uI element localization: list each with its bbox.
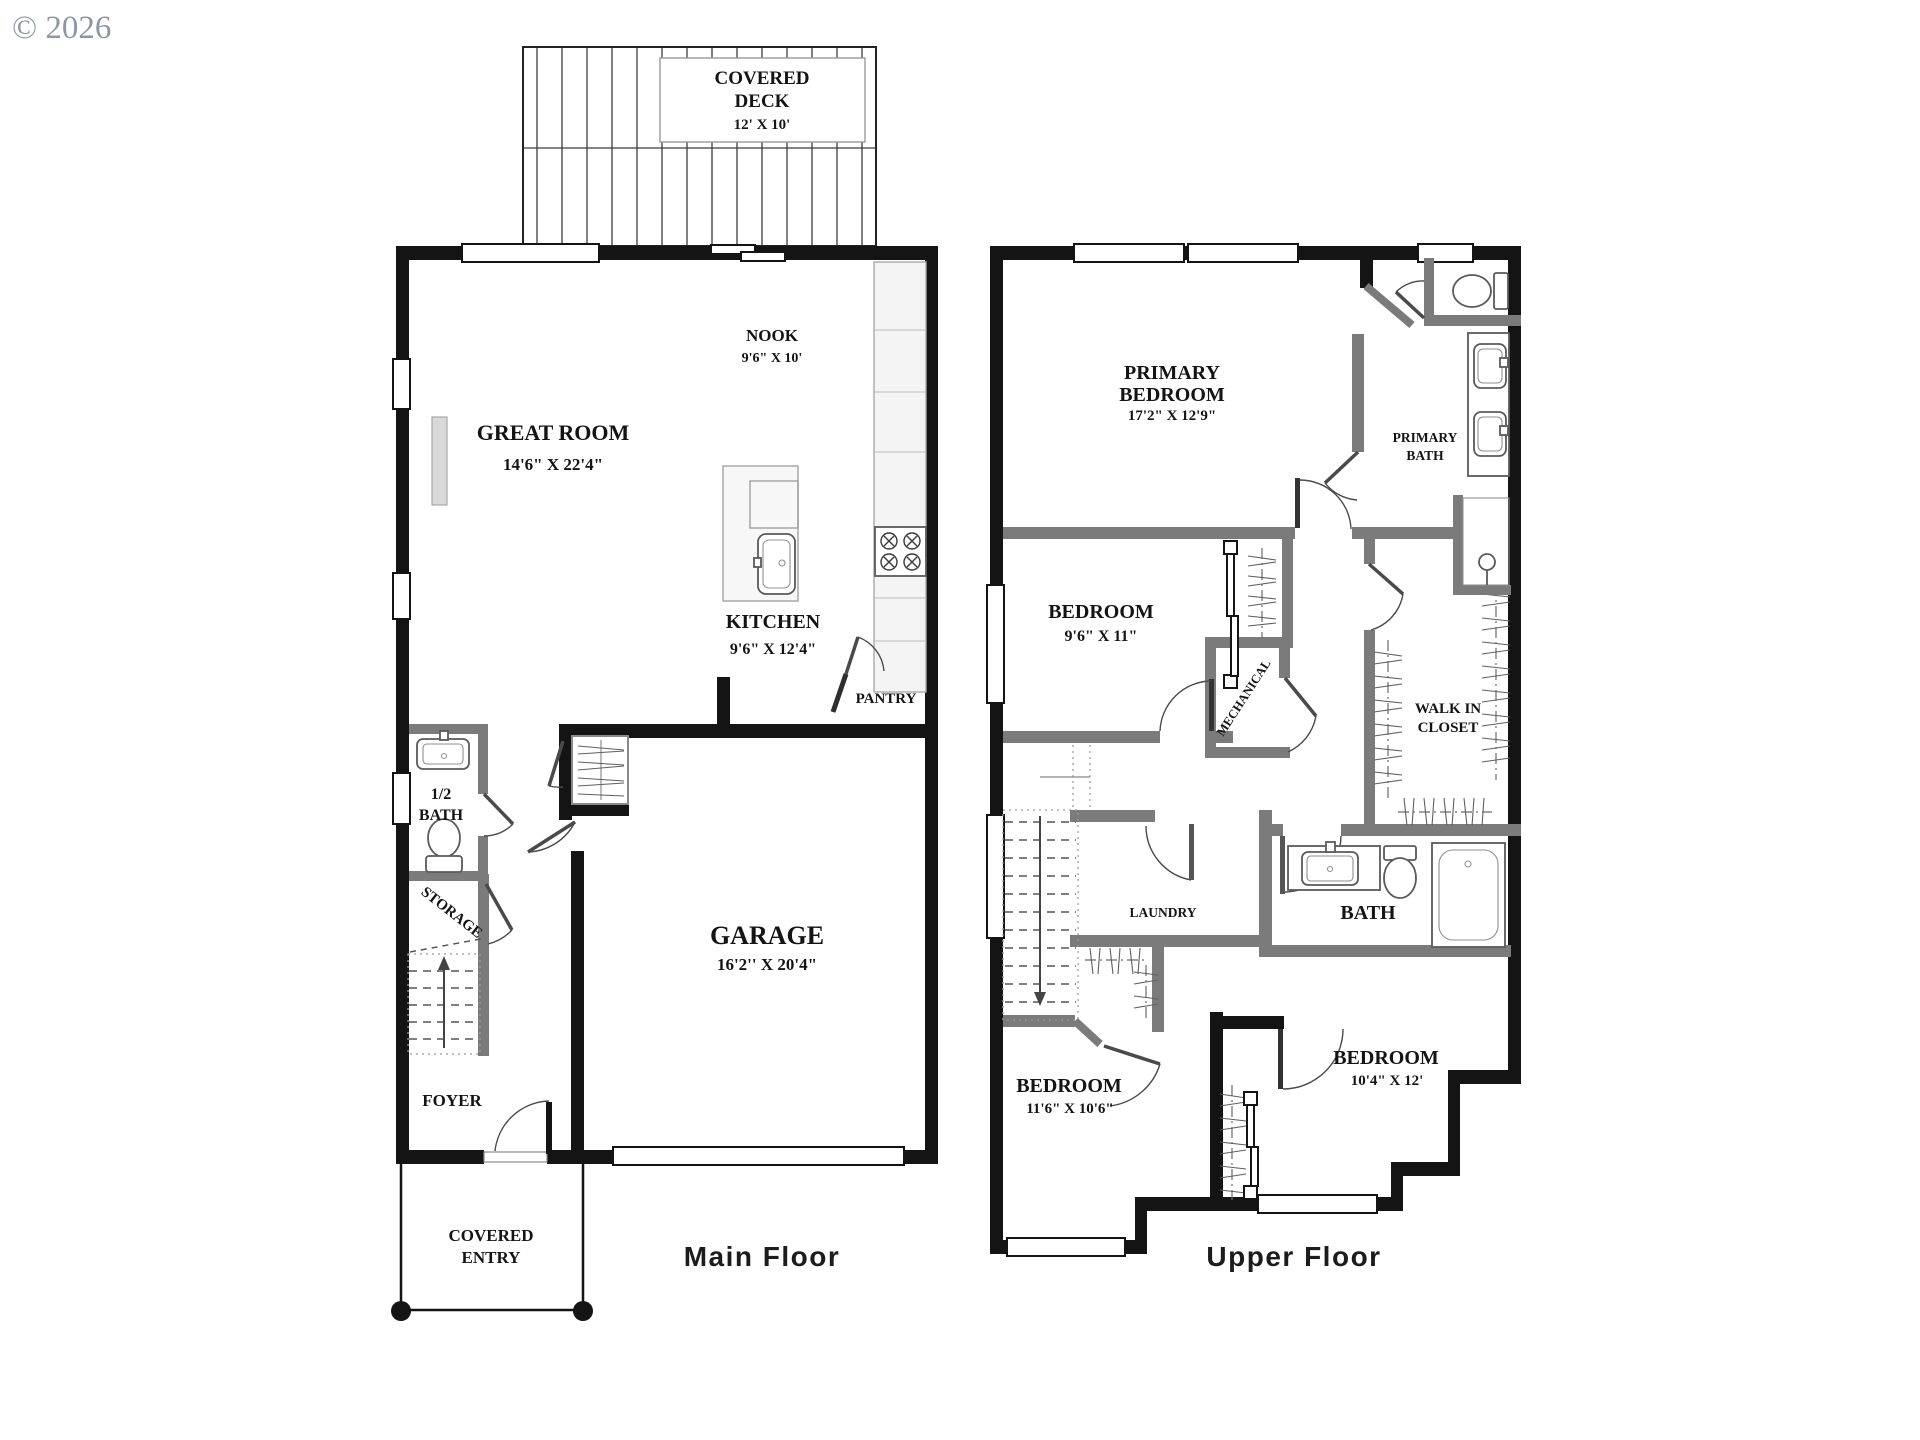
shower-head-icon xyxy=(1479,554,1495,570)
shower-pan xyxy=(1463,498,1509,585)
deck-slider-panel-2 xyxy=(741,252,785,261)
bedroom-right-dims: 10'4" X 12' xyxy=(1351,1073,1424,1089)
toilet-tank-icon xyxy=(426,856,462,872)
entry-post-left xyxy=(391,1301,411,1321)
primary-bedroom-label-2: BEDROOM xyxy=(1119,384,1225,406)
uwall-laundry-right xyxy=(1259,810,1272,957)
nook-label: NOOK xyxy=(746,326,799,345)
copyright-text: © 2026 xyxy=(12,10,111,46)
bed104-closet xyxy=(1220,1085,1258,1200)
floor-plan-canvas: © 2026 COVERED DECK 12' X 10' xyxy=(0,0,1920,1440)
shower-wall-bottom xyxy=(1453,585,1511,595)
bath-door-arc xyxy=(484,824,513,836)
wall-bottom-3 xyxy=(904,1150,938,1164)
kitchen-dims: 9'6" X 12'4" xyxy=(730,641,816,658)
hall-bath-fixtures xyxy=(1288,842,1505,947)
storage-door-arc xyxy=(488,930,512,944)
wic-door-arc xyxy=(1371,594,1403,630)
foyer-hall-door-leaf xyxy=(528,822,575,852)
uwall-primary-south-1 xyxy=(1003,527,1295,539)
primary-bath-label-1: PRIMARY xyxy=(1393,430,1458,445)
toilet-bowl-icon xyxy=(428,819,460,857)
uwall-bed116-diag xyxy=(1075,1021,1100,1044)
bedroom-mid-dims: 9'6" X 11" xyxy=(1065,628,1138,645)
bedroom-mid-label: BEDROOM xyxy=(1048,601,1154,623)
uwall-wic-left-2 xyxy=(1364,630,1375,833)
bed116-door-leaf xyxy=(1104,1046,1160,1064)
bedroom-left-dims: 11'6" X 10'6" xyxy=(1026,1101,1114,1117)
garage-dims: 16'2'' X 20'4" xyxy=(717,955,817,974)
pantry-door-leaf xyxy=(846,637,858,674)
bifold104-panel-2 xyxy=(1251,1147,1258,1186)
bath-door-leaf xyxy=(1280,836,1285,894)
main-floor-plan: COVERED DECK 12' X 10' xyxy=(391,47,938,1321)
foyer-label: FOYER xyxy=(422,1091,482,1110)
uwall-left xyxy=(990,246,1003,1254)
wic-door-leaf xyxy=(1369,564,1403,594)
primary-bath-label-2: BATH xyxy=(1406,448,1444,463)
bedroom-left-label: BEDROOM xyxy=(1016,1075,1122,1097)
bath-wall-right-1 xyxy=(478,734,488,794)
shower-wall-left xyxy=(1453,495,1463,595)
laundry-door-arc xyxy=(1146,826,1191,880)
wc-door-arc xyxy=(1396,281,1424,292)
storage-stairs: STORAGE FOYER xyxy=(408,874,552,1154)
kitchen-label: KITCHEN xyxy=(726,611,821,633)
upper-stairs xyxy=(1003,745,1090,1020)
entry-post-right xyxy=(573,1301,593,1321)
primary-door-leaf xyxy=(1295,478,1300,528)
uwindow-bottom-right xyxy=(1258,1195,1377,1213)
wall-garage-left xyxy=(571,851,584,1151)
uwall-mech-top xyxy=(1205,637,1293,648)
uwall-bath-top xyxy=(1341,824,1521,836)
upper-floor-title: Upper Floor xyxy=(1206,1241,1381,1272)
uwall-bed96-south-1 xyxy=(1003,731,1160,743)
kitchen-counter xyxy=(874,262,926,692)
uwall-closet116-right xyxy=(1152,947,1164,1032)
mech-door-arc xyxy=(1288,716,1316,752)
covered-entry-label-2: ENTRY xyxy=(462,1248,521,1267)
bath-faucet xyxy=(440,731,448,740)
primary-bedroom-dims: 17'2" X 12'9" xyxy=(1128,408,1216,424)
uwindow-bottom-left xyxy=(1007,1238,1125,1256)
uwall-laundry-top xyxy=(1070,810,1155,822)
uwall-closet96-right xyxy=(1282,533,1293,645)
bath-wall-right-2 xyxy=(478,836,488,874)
uwall-vestibule-stub xyxy=(1360,258,1373,288)
bath-door-leaf xyxy=(484,794,513,824)
wc-toilet-tank xyxy=(1494,273,1508,309)
uwall-bath-corner xyxy=(1271,824,1283,836)
front-door-arc xyxy=(495,1101,549,1151)
window-top xyxy=(462,244,599,262)
uwall-primary-south-2 xyxy=(1352,527,1460,539)
wall-right xyxy=(925,246,938,1164)
uwall-step1v xyxy=(1448,1070,1460,1176)
uwall-hall-h xyxy=(1218,1016,1284,1029)
fireplace-niche xyxy=(432,417,447,505)
pbath-door-arc xyxy=(1325,483,1357,500)
covered-entry: COVERED ENTRY xyxy=(391,1164,593,1321)
closet104-hangers xyxy=(1220,1094,1246,1193)
stair-wall xyxy=(478,874,489,1056)
garage-label: GARAGE xyxy=(710,921,824,950)
pbath-faucet-2 xyxy=(1500,426,1508,435)
bed96-door-leaf xyxy=(1209,679,1214,731)
walk-in-closet-label-2: CLOSET xyxy=(1418,720,1479,736)
bath2-toilet-bowl xyxy=(1384,858,1416,898)
bifold104-panel-1 xyxy=(1247,1105,1254,1147)
bed116-closet xyxy=(1085,948,1158,1020)
laundry-door-leaf xyxy=(1189,824,1194,880)
bath2-sink xyxy=(1302,852,1358,885)
covered-deck-label-1: COVERED xyxy=(714,68,809,89)
uwall-wic-left-1 xyxy=(1364,539,1375,564)
storage-label: STORAGE xyxy=(418,884,485,942)
window-left-1 xyxy=(393,359,410,409)
bifold-end-top xyxy=(1224,541,1237,554)
wall-bottom-2 xyxy=(547,1150,613,1164)
uwall-wc-left xyxy=(1424,258,1434,320)
front-door-leaf xyxy=(546,1102,552,1154)
coat-closet xyxy=(528,736,628,852)
window-left-2 xyxy=(393,573,410,619)
bath-label: BATH xyxy=(1340,902,1396,924)
half-bath-label-1: 1/2 xyxy=(431,786,451,803)
nook-dims: 9'6" X 10' xyxy=(742,351,803,366)
half-bath-label-2: BATH xyxy=(419,807,464,824)
uwall-pbath-divider xyxy=(1352,334,1364,452)
covered-deck: COVERED DECK 12' X 10' xyxy=(523,47,876,246)
bifold104-end-bottom xyxy=(1244,1186,1257,1199)
ustair-arrow-head xyxy=(1034,992,1046,1006)
mech-door-leaf xyxy=(1285,678,1316,716)
primary-bedroom-label-1: PRIMARY xyxy=(1124,362,1221,384)
mechanical-label: MECHANICAL xyxy=(1214,657,1274,739)
bifold104-end-top xyxy=(1244,1092,1257,1105)
wc-toilet-bowl xyxy=(1453,275,1491,307)
laundry-label: LAUNDRY xyxy=(1129,905,1196,920)
uwindow-left-1 xyxy=(987,585,1004,703)
window-left-3 xyxy=(393,773,410,824)
pantry-label: PANTRY xyxy=(856,691,917,707)
stair-arrow-head xyxy=(438,956,450,970)
garage-door xyxy=(613,1147,904,1165)
front-door-threshold xyxy=(484,1152,547,1162)
pbath-door-leaf xyxy=(1325,452,1358,483)
great-room-label: GREAT ROOM xyxy=(477,420,630,445)
sink-faucet xyxy=(754,558,761,567)
pantry-wall xyxy=(833,674,846,712)
covered-deck-dims: 12' X 10' xyxy=(734,117,791,133)
stove-icon xyxy=(875,527,926,576)
uwindow-left-2 xyxy=(987,815,1004,938)
uwall-mech-bottom xyxy=(1205,747,1290,758)
uwall-bed116-top xyxy=(1003,1015,1075,1027)
uwindow-top-1 xyxy=(1074,244,1184,262)
great-room-dims: 14'6" X 22'4" xyxy=(503,455,603,474)
covered-deck-label-2: DECK xyxy=(735,91,790,112)
uwall-diagonal xyxy=(1366,286,1412,325)
pbath-faucet-1 xyxy=(1500,358,1508,367)
uwall-right xyxy=(1508,246,1521,1084)
bed96-door-arc xyxy=(1160,681,1211,731)
uwall-laundry-bottom xyxy=(1070,935,1262,947)
bath2-faucet xyxy=(1326,842,1335,852)
uwall-mech-right xyxy=(1279,648,1290,678)
bed104-door-leaf xyxy=(1278,1029,1283,1089)
bedroom-right-label: BEDROOM xyxy=(1333,1047,1439,1069)
wall-kitchen-stub xyxy=(717,677,730,737)
half-bath: 1/2 BATH xyxy=(409,724,513,881)
upper-floor-plan: PRIMARY BEDROOM 17'2" X 12'9" PRIMARY BA… xyxy=(987,244,1521,1272)
covered-entry-label-1: COVERED xyxy=(448,1226,533,1245)
uwall-wc-bottom xyxy=(1424,315,1521,326)
bathtub-icon xyxy=(1432,843,1505,947)
bifold-panel-2 xyxy=(1231,616,1238,676)
wall-bottom-1 xyxy=(396,1150,484,1164)
uwall-bedroom-divider xyxy=(1210,1012,1223,1211)
bifold-panel-1 xyxy=(1227,554,1234,616)
primary-door-arc xyxy=(1300,480,1351,529)
closet116-hangers xyxy=(1090,948,1140,974)
main-floor-title: Main Floor xyxy=(684,1241,841,1272)
uwindow-top-2 xyxy=(1188,244,1298,262)
main-floor-windows xyxy=(393,244,904,1165)
walk-in-closet-label-1: WALK IN xyxy=(1415,701,1481,717)
storage-door-leaf xyxy=(486,884,512,930)
